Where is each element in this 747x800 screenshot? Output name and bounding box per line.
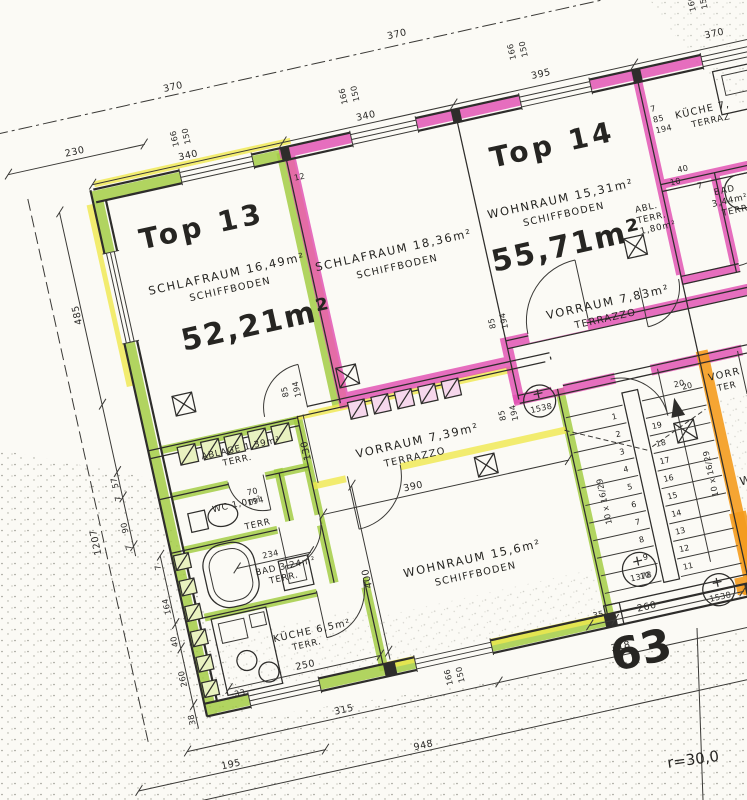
scanned-floorplan-page: 1 2 3 4 5 6 7 8 9 10 11 12 13 14 15 16 1… [0,0,747,800]
floorplan-canvas: 1 2 3 4 5 6 7 8 9 10 11 12 13 14 15 16 1… [0,0,747,800]
